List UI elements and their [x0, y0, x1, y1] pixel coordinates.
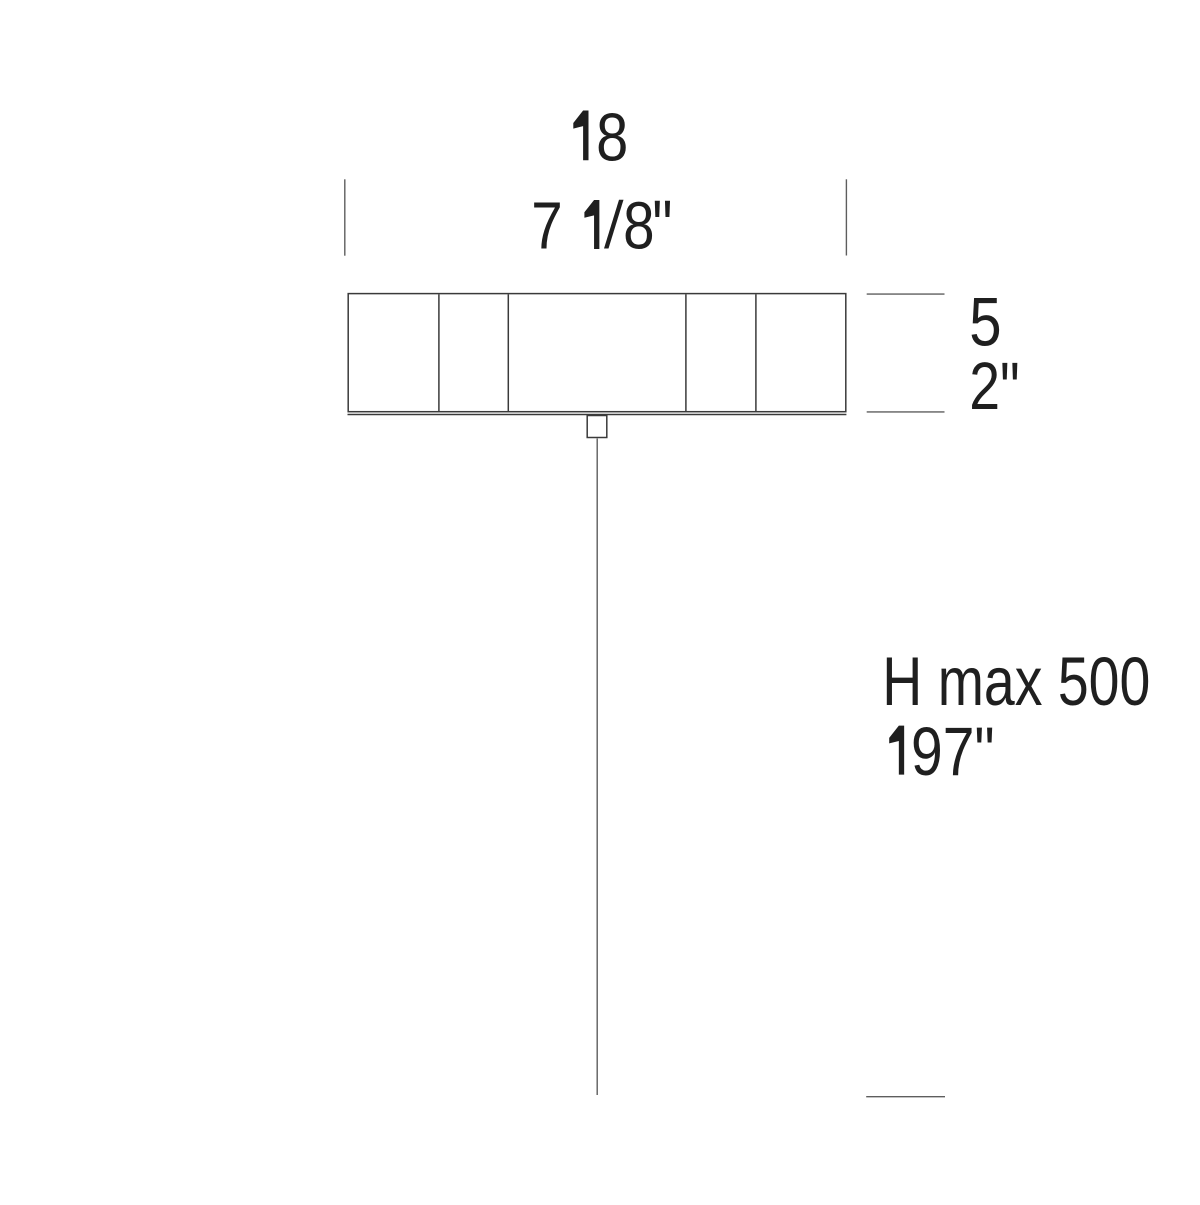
- svg-text:": ": [1000, 347, 1020, 433]
- svg-text:H max 500: H max 500: [882, 644, 1150, 720]
- svg-text:7: 7: [531, 189, 562, 264]
- svg-text:8: 8: [596, 100, 628, 175]
- svg-text:2: 2: [969, 349, 1000, 424]
- svg-text:": ": [652, 186, 672, 270]
- svg-text:8: 8: [623, 189, 654, 264]
- svg-text:97": 97": [911, 714, 995, 790]
